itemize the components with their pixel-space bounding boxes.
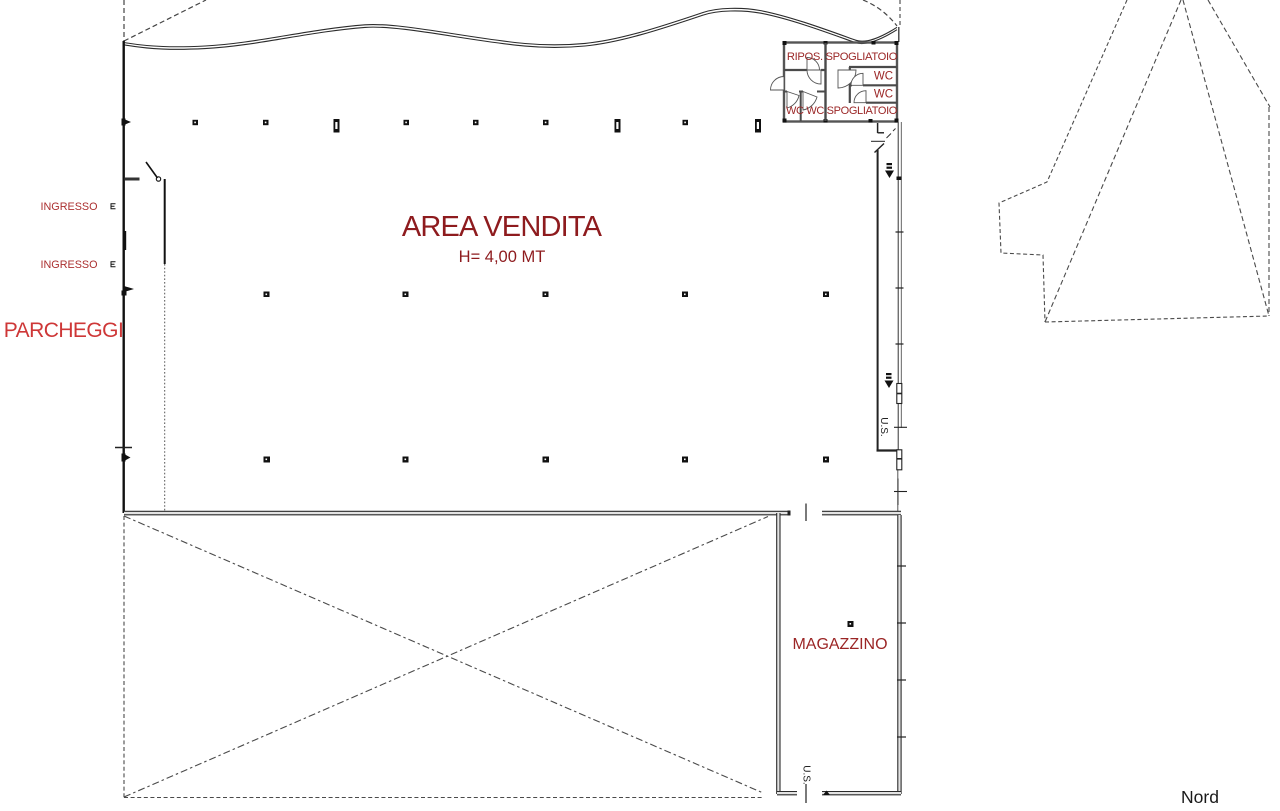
svg-text:WC WC SPOGLIATOIO: WC WC SPOGLIATOIO xyxy=(786,105,898,117)
svg-text:WC: WC xyxy=(874,71,893,83)
svg-text:MAGAZZINO: MAGAZZINO xyxy=(792,636,887,653)
svg-text:WC: WC xyxy=(874,89,893,101)
svg-text:INGRESSO: INGRESSO xyxy=(41,259,98,271)
svg-text:AREA VENDITA: AREA VENDITA xyxy=(402,211,603,243)
svg-text:U.S.: U.S. xyxy=(878,417,889,436)
svg-text:H= 4,00 MT: H= 4,00 MT xyxy=(459,248,546,266)
svg-text:RIPOS. SPOGLIATOIO: RIPOS. SPOGLIATOIO xyxy=(787,51,898,63)
svg-text:Nord: Nord xyxy=(1181,787,1219,807)
svg-text:INGRESSO: INGRESSO xyxy=(41,201,98,213)
svg-text:PARCHEGGI: PARCHEGGI xyxy=(4,319,124,342)
svg-text:U.S.: U.S. xyxy=(801,765,812,784)
